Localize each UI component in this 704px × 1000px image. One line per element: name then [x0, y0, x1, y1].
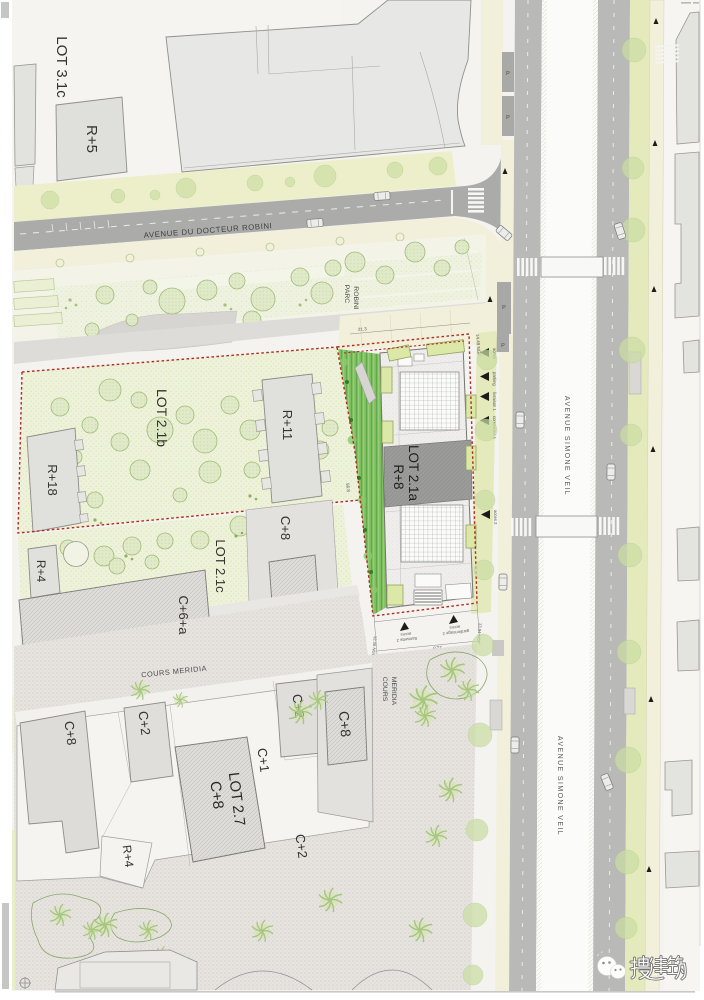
svg-text:P: P — [506, 71, 510, 77]
svg-text:C+8: C+8 — [206, 780, 226, 810]
svg-text:R+5: R+5 — [83, 125, 100, 153]
svg-text:C+8: C+8 — [336, 710, 354, 738]
svg-text:R+8: R+8 — [391, 464, 406, 489]
svg-text:P: P — [502, 305, 506, 311]
svg-text:parking: parking — [492, 372, 497, 386]
svg-text:COURS: COURS — [381, 677, 388, 702]
svg-text:C+2: C+2 — [293, 833, 311, 859]
svg-text:P: P — [501, 343, 505, 349]
svg-text:LOT 2.1a: LOT 2.1a — [406, 445, 421, 502]
svg-text:LOT 2.1b: LOT 2.1b — [154, 389, 170, 447]
svg-text:P: P — [506, 115, 510, 121]
svg-text:AVENUE SIMONE VEIL: AVENUE SIMONE VEIL — [563, 396, 570, 496]
svg-text:C+6+a: C+6+a — [176, 595, 191, 635]
svg-text:R+4: R+4 — [34, 560, 48, 583]
svg-text:C+1: C+1 — [255, 747, 273, 773]
svg-text:ROBINI: ROBINI — [352, 286, 359, 310]
svg-text:livraison 1: livraison 1 — [492, 392, 497, 412]
svg-text:C+8: C+8 — [62, 720, 80, 746]
svg-text:LOT 2.1c: LOT 2.1c — [213, 539, 228, 593]
svg-text:C+2: C+2 — [136, 710, 154, 736]
svg-text:MERIDIA: MERIDIA — [390, 677, 397, 706]
svg-text:PARC: PARC — [343, 285, 350, 303]
svg-text:R+18: R+18 — [45, 464, 60, 495]
svg-text:C+8: C+8 — [278, 516, 293, 540]
svg-text:21.3: 21.3 — [358, 326, 368, 332]
svg-text:R+11: R+11 — [280, 410, 295, 440]
svg-text:AVENUE SIMONE VEIL: AVENUE SIMONE VEIL — [556, 736, 563, 836]
svg-text:R+4: R+4 — [120, 844, 137, 868]
svg-text:LOT 3.1c: LOT 3.1c — [53, 36, 70, 98]
svg-text:acces 2: acces 2 — [493, 510, 498, 525]
